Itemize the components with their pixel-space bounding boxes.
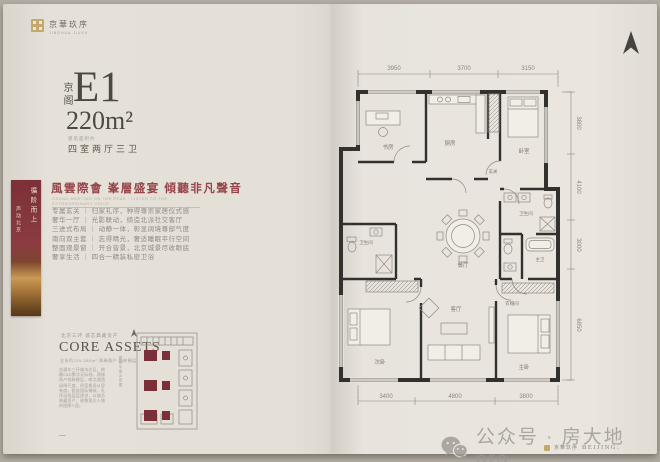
footer-brand: 京華玖序 BEIJING. [544, 444, 620, 451]
footer-city: BEIJING. [582, 444, 620, 451]
room-label-living: 客厅 [450, 305, 462, 313]
brand-name: 京華玖序 [49, 19, 89, 30]
highlighted-units [144, 350, 170, 421]
slogan-headline: 風雲際會 峯層盛宴 傾聽非凡聲音 [51, 180, 242, 196]
footer-seal-icon [544, 445, 550, 451]
side-banner-text-2: 声动北京 [15, 206, 22, 234]
brand-seal-icon [31, 19, 44, 32]
side-banner-text-1: 循阶而上 [27, 187, 37, 225]
dim-bottom-1: 3400 [379, 394, 393, 400]
room-label-master-bath: 主卫 [536, 256, 545, 262]
feature-item: 奢享生活 ｜ 四合一精装私密卫浴 [52, 253, 242, 262]
dim-right-3: 3000 [575, 238, 581, 252]
feature-item: 三进式布局 ｜ 动静一体，彰显阔境尊邸气度 [52, 225, 242, 234]
core-subtitle: 全系约220-280m² 两梯两户 纯粹圈层 [60, 358, 137, 364]
dim-top-2: 3700 [457, 66, 471, 72]
keyplan-north-icon [131, 329, 137, 337]
brand-subtitle: JINGHUA JIUXU [49, 31, 89, 35]
core-dash: — [59, 432, 66, 439]
unit-area: 220m² [66, 108, 133, 134]
room-label-study: 书房 [382, 143, 394, 151]
room-label-bath1: 卫生间 [519, 210, 533, 217]
footer-brand-name: 京華玖序 [554, 444, 578, 451]
dim-top-3: 3150 [521, 66, 535, 72]
building-keyplan-diagram [129, 328, 205, 434]
furniture [347, 94, 555, 360]
feature-item: 南向双主套 ｜ 志得晴光，奢适睡眠平行空间 [52, 235, 242, 244]
keyplan-caption: 楼座平面示意图 [119, 356, 124, 388]
core-body-text: 坐踞东三环城市芯区，俯瞰CBD繁华天际线。两梯两户纯粹圈层，南北通透阔绰尺度，四… [59, 367, 105, 409]
brochure-spread: 京華玖序 JINGHUA JIUXU 京阁 E1 220m² 建筑面积约 四室两… [3, 4, 657, 454]
watermark: 公众号 · 房大地pro [441, 422, 657, 462]
brand-logo: 京華玖序 JINGHUA JIUXU [31, 19, 89, 35]
dim-bottom-3: 3800 [519, 394, 533, 400]
room-label-foyer: 玄关 [489, 168, 498, 175]
feature-list: 专属玄关 ｜ 归家礼序，种得尊崇家居仪式感 奢华一厅 ｜ 光影联动，缔造北派社交… [52, 207, 242, 262]
room-label-closet: 衣帽间 [505, 300, 519, 307]
feature-item: 专属玄关 ｜ 归家礼序，种得尊崇家居仪式感 [52, 207, 242, 216]
dim-top-1: 3950 [387, 66, 401, 72]
room-label-master: 主卧 [518, 363, 530, 371]
room-label-bath2: 卫生间 [359, 239, 373, 246]
room-label-dining: 餐厅 [457, 261, 469, 269]
side-banner-photo: 循阶而上 声动北京 [11, 180, 41, 316]
room-label-kitchen: 厨房 [444, 139, 456, 147]
dim-right-4: 6850 [575, 318, 581, 332]
dim-right-1: 3800 [575, 116, 581, 130]
floor-plan: 书房 厨房 卧室 玄关 餐厅 卫生间 次卧 卫生间 客厅 主卧 主卫 衣帽间 [336, 49, 641, 414]
feature-item: 奢华一厅 ｜ 光影联动，缔造北派社交客厅 [52, 216, 242, 225]
dim-bottom-2: 4800 [448, 394, 462, 400]
unit-model: E1 [73, 66, 121, 109]
room-label-bedroom2: 卧室 [518, 147, 530, 155]
watermark-text: 公众号 · 房大地pro [476, 422, 657, 462]
room-label-bedroom3: 次卧 [374, 358, 386, 366]
feature-item: 整面观景窗 ｜ 开合皆景，北京城景尽收眼底 [52, 244, 242, 253]
unit-prefix: 京阁 [59, 82, 74, 108]
unit-layout: 四室两厅三卫 [68, 142, 140, 155]
north-arrow-icon [621, 30, 641, 56]
core-eyebrow: 北京三环 城芯典藏资产 [61, 333, 118, 339]
wechat-icon [441, 435, 468, 459]
dim-right-2: 4100 [575, 180, 581, 194]
